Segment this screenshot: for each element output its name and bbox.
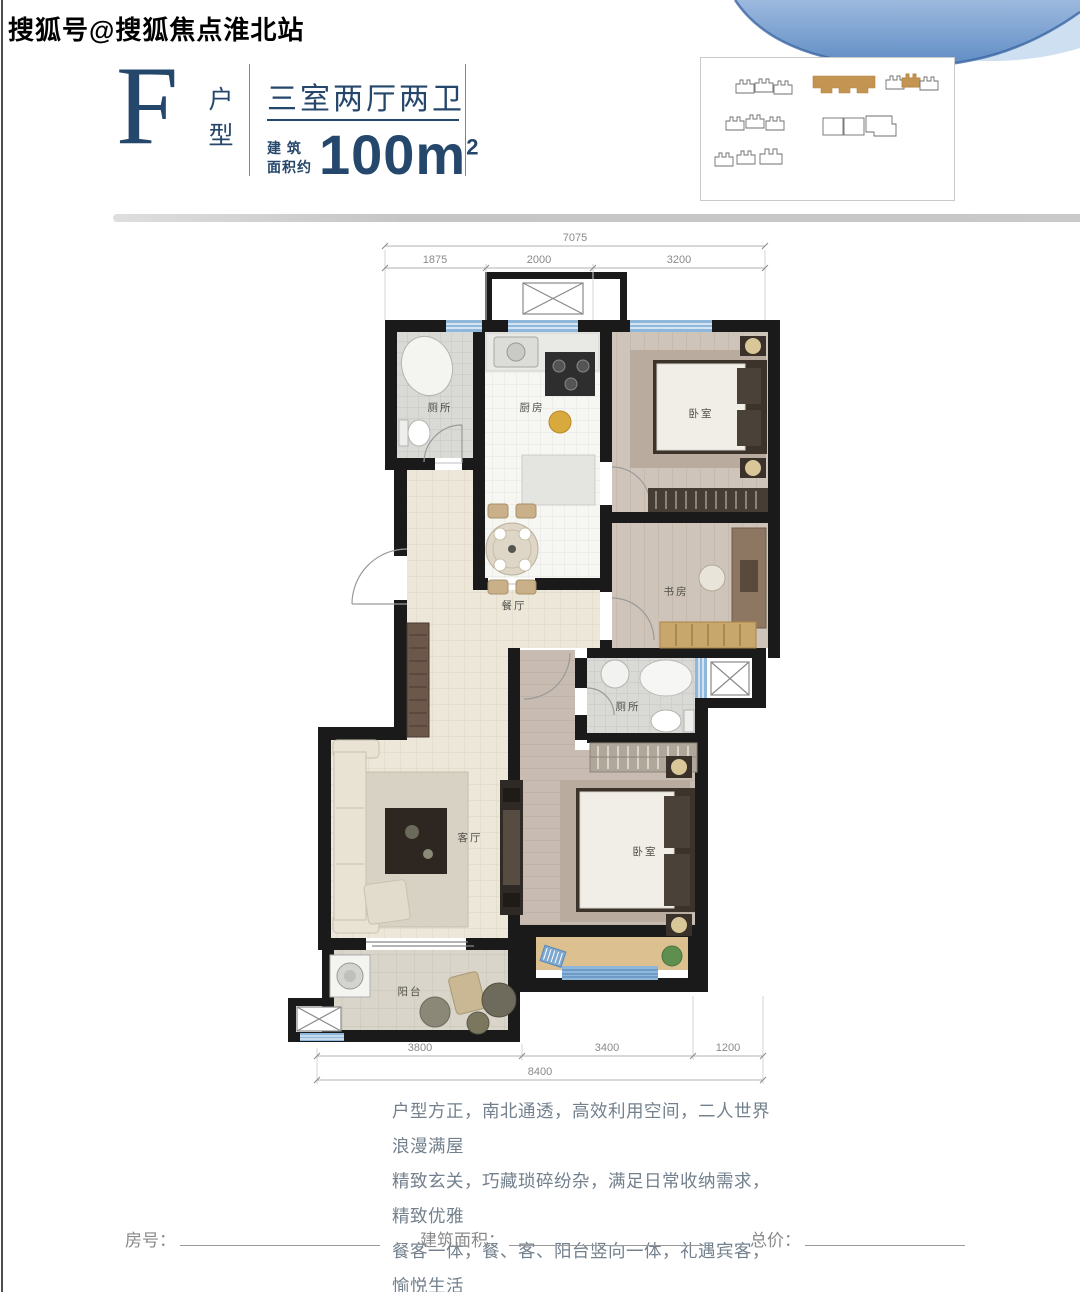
sink-symbol-mid	[601, 660, 629, 688]
building-partial-highlight	[886, 74, 938, 90]
tv-cabinet-symbol	[500, 780, 523, 915]
window-kitchen	[508, 320, 578, 332]
dim-bottom-seg3: 1200	[716, 1042, 740, 1054]
dim-top-seg2: 2000	[527, 254, 551, 266]
flue-symbol-balcony	[297, 1007, 341, 1031]
building-highlighted	[813, 76, 875, 93]
footer-form: 房号： 建筑面积： 总价：	[0, 1226, 1080, 1266]
dim-top-seg3: 3200	[667, 254, 691, 266]
room-label-kitchen: 厨房	[520, 401, 545, 414]
washing-machine-symbol	[330, 955, 370, 997]
total-price-label: 总价：	[750, 1231, 801, 1250]
section-divider	[113, 214, 1080, 222]
description-line: 户型方正，南北通透，高效利用空间，二人世界浪漫满屋	[392, 1094, 772, 1164]
description-line: 精致玄关，巧藏琐碎纷杂，满足日常收纳需求，精致优雅	[392, 1164, 772, 1234]
stove-symbol	[545, 352, 595, 396]
dim-bottom-seg2: 3400	[595, 1042, 619, 1054]
total-price-field: 总价：	[750, 1226, 965, 1251]
site-plan-map	[701, 58, 954, 200]
total-price-blank-line	[805, 1232, 965, 1246]
bowl-symbol	[549, 411, 571, 433]
unit-type-label: 户型	[201, 86, 237, 158]
window-bathroom-mid	[695, 658, 707, 698]
toilet-symbol-mid	[651, 710, 694, 732]
kitchen-cabinet	[522, 455, 595, 505]
window-flue-corner	[300, 1033, 344, 1041]
entry-door	[352, 549, 407, 604]
room-label-bedroom-top: 卧室	[689, 407, 714, 420]
header-divider-right	[465, 64, 466, 176]
bed-symbol-top	[653, 360, 767, 454]
layout-text: 三室两厅两卫	[267, 74, 465, 118]
plant-symbol-bay	[662, 946, 682, 966]
area-number: 100m	[319, 123, 466, 186]
dim-top-seg1: 1875	[423, 254, 447, 266]
area-superscript: 2	[466, 134, 479, 159]
unit-letter: F	[116, 50, 178, 162]
balcony-sliding-door	[366, 942, 474, 946]
poster-page: 搜狐号@搜狐焦点淮北站 F 户型 三室两厅两卫 建 筑 面积约 100m2	[0, 0, 1080, 1292]
room-label-bathroom-mid: 厕所	[616, 701, 641, 713]
chair-symbol	[699, 565, 725, 591]
build-area-label: 建筑面积：	[420, 1231, 505, 1250]
shoe-cabinet-symbol	[407, 623, 429, 737]
header-divider-left	[249, 64, 250, 176]
dim-bottom-total: 8400	[528, 1066, 552, 1078]
area-value: 100m2	[319, 127, 479, 183]
build-area-field: 建筑面积：	[420, 1226, 704, 1251]
sink-symbol	[494, 337, 538, 367]
building-outline-row1	[736, 79, 792, 94]
area-label: 建 筑 面积约	[267, 139, 312, 177]
window-bedroom-top	[630, 320, 712, 332]
dim-top-total: 7075	[563, 232, 587, 244]
dim-bottom-seg1: 3800	[408, 1042, 432, 1054]
room-number-blank-line	[180, 1232, 380, 1246]
window-bay	[562, 966, 658, 980]
flue-symbol-bathroom	[711, 662, 749, 695]
area-block: 建 筑 面积约 100m2	[267, 127, 479, 183]
window-bathroom-top	[446, 320, 482, 332]
room-label-bathroom-top: 厕所	[428, 402, 453, 414]
room-label-study: 书房	[664, 585, 689, 598]
tub-symbol-mid	[640, 660, 692, 696]
floor-plan: 厕所 厨房 卧室 餐厅 书房 厕所 客厅 卧室 阳台 7075 1875 200…	[270, 225, 800, 1090]
site-plan	[700, 57, 955, 201]
page-edge-line	[1, 0, 3, 1292]
wardrobe-symbol-top	[648, 488, 768, 512]
room-label-bedroom-bottom: 卧室	[633, 845, 658, 858]
build-area-blank-line	[509, 1232, 704, 1246]
desk-symbol	[732, 528, 766, 628]
watermark: 搜狐号@搜狐焦点淮北站	[8, 10, 304, 47]
coffee-table-symbol	[385, 808, 447, 874]
flue-symbol-kitchen	[523, 283, 583, 314]
room-label-living: 客厅	[458, 831, 483, 844]
room-label-balcony: 阳台	[398, 985, 423, 998]
toilet-symbol-top	[399, 420, 430, 446]
building-outline-row2	[726, 115, 896, 136]
room-number-field: 房号：	[125, 1226, 380, 1251]
room-number-label: 房号：	[125, 1231, 176, 1250]
building-outline-row3	[715, 149, 782, 166]
room-label-dining: 餐厅	[502, 599, 527, 612]
bookshelf-symbol	[660, 622, 756, 648]
layout-underline	[267, 119, 459, 121]
